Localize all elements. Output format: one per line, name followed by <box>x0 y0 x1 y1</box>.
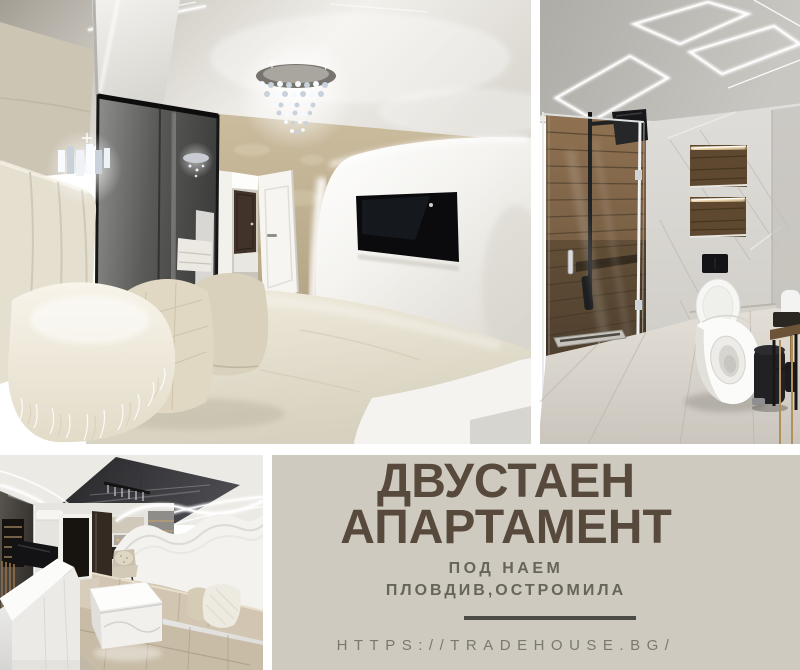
subtitle-rent: ПОД НАЕМ <box>272 560 740 578</box>
caption-panel: ДВУСТАЕН АПАРТАМЕНТ ПОД НАЕМ ПЛОВДИВ,ОСТ… <box>272 455 800 670</box>
glass-door-handle <box>568 250 573 274</box>
bathroom-illustration <box>540 0 800 444</box>
living-room-illustration <box>0 455 263 670</box>
crystal-sconce <box>46 130 122 206</box>
website-url: HTTPS://TRADEHOUSE.BG/ <box>272 637 740 654</box>
subtitle-location: ПЛОВДИВ,ОСТРОМИЛА <box>272 582 740 600</box>
bathroom-photo <box>540 0 800 444</box>
bedroom-door <box>258 170 298 302</box>
chandelier <box>238 34 354 150</box>
coffee-table <box>90 582 162 661</box>
niche-lower <box>690 197 746 237</box>
title-line-1: ДВУСТАЕН <box>272 459 740 505</box>
bedroom-photo <box>0 0 531 444</box>
door-handle <box>267 234 277 237</box>
title-line-2: АПАРТАМЕНТ <box>272 505 740 551</box>
niche-upper <box>690 145 747 187</box>
pillows <box>8 273 285 442</box>
bedroom-illustration <box>0 0 531 444</box>
air-conditioner <box>36 510 63 520</box>
divider-line <box>464 616 636 620</box>
living-room-photo <box>0 455 263 670</box>
bin-pedal <box>752 398 765 405</box>
towel <box>773 312 800 327</box>
